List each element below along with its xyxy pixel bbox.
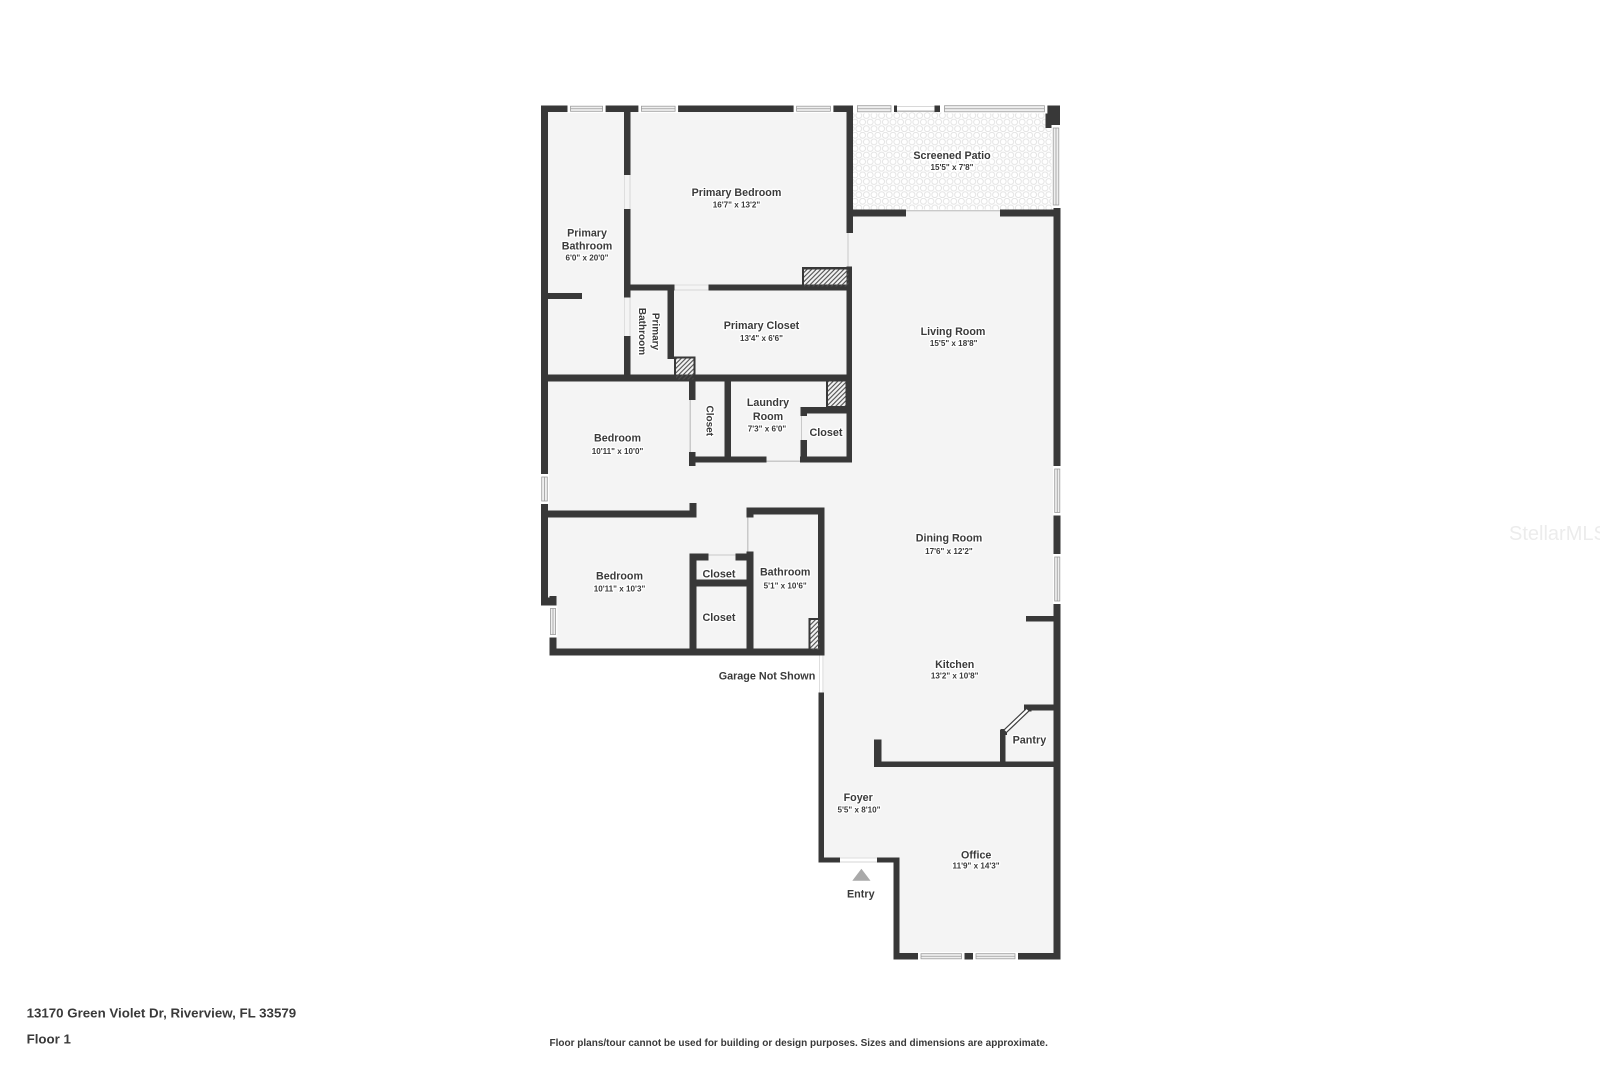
svg-text:7'3" x 6'0": 7'3" x 6'0" (748, 424, 787, 433)
svg-text:Closet: Closet (703, 406, 714, 437)
svg-text:Dining Room: Dining Room (916, 533, 983, 545)
svg-text:Primary Closet: Primary Closet (724, 320, 800, 332)
svg-text:13'4" x 6'6": 13'4" x 6'6" (740, 334, 783, 343)
svg-text:Living Room: Living Room (921, 326, 986, 338)
svg-text:Kitchen: Kitchen (935, 659, 974, 671)
svg-text:Screened Patio: Screened Patio (913, 150, 991, 162)
svg-text:10'11" x 10'0": 10'11" x 10'0" (592, 447, 644, 456)
svg-text:5'1" x 10'6": 5'1" x 10'6" (764, 582, 807, 591)
svg-text:6'0" x 20'0": 6'0" x 20'0" (565, 253, 608, 262)
svg-text:15'5" x 7'8": 15'5" x 7'8" (930, 163, 973, 172)
svg-text:Closet: Closet (703, 612, 736, 624)
svg-text:Primary: Primary (567, 228, 607, 240)
svg-text:Room: Room (753, 411, 783, 423)
svg-text:Bathroom: Bathroom (562, 240, 612, 252)
svg-text:Laundry: Laundry (747, 397, 789, 409)
svg-text:11'9" x 14'3": 11'9" x 14'3" (953, 862, 1000, 871)
svg-text:Bathroom: Bathroom (760, 567, 810, 579)
svg-text:StellarMLS: StellarMLS (1509, 523, 1600, 545)
svg-text:13170 Green Violet Dr, Rivervi: 13170 Green Violet Dr, Riverview, FL 335… (27, 1006, 297, 1021)
svg-text:Closet: Closet (810, 427, 843, 439)
svg-text:10'11" x 10'3": 10'11" x 10'3" (594, 585, 646, 594)
svg-text:Pantry: Pantry (1013, 734, 1047, 746)
svg-text:Closet: Closet (703, 568, 736, 580)
svg-text:Entry: Entry (847, 889, 875, 901)
svg-text:13'2" x 10'8": 13'2" x 10'8" (931, 672, 979, 681)
svg-text:Bedroom: Bedroom (596, 571, 643, 583)
svg-text:Foyer: Foyer (844, 792, 873, 804)
svg-text:Office: Office (961, 849, 991, 861)
svg-text:Bedroom: Bedroom (594, 433, 641, 445)
svg-text:15'5" x 18'8": 15'5" x 18'8" (930, 339, 978, 348)
svg-text:Floor plans/tour cannot be use: Floor plans/tour cannot be used for buil… (549, 1038, 1048, 1049)
svg-text:Floor 1: Floor 1 (27, 1032, 72, 1047)
svg-text:5'5" x 8'10": 5'5" x 8'10" (837, 806, 880, 815)
svg-text:Primary Bedroom: Primary Bedroom (692, 187, 782, 199)
svg-text:17'6" x 12'2": 17'6" x 12'2" (925, 547, 973, 556)
svg-text:Garage Not Shown: Garage Not Shown (719, 671, 816, 683)
svg-text:16'7" x 13'2": 16'7" x 13'2" (713, 201, 761, 210)
